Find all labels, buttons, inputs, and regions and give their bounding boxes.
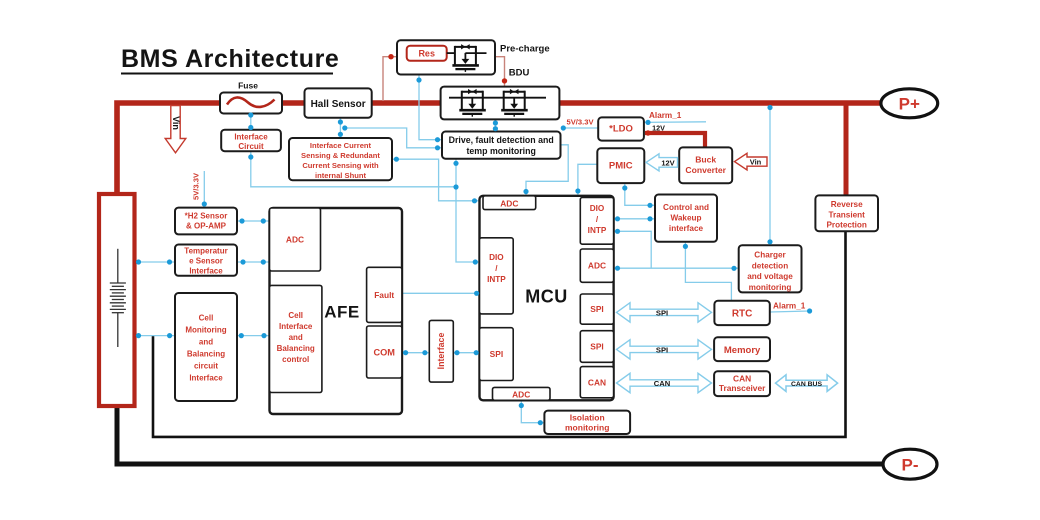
- svg-text:12V: 12V: [661, 159, 674, 168]
- svg-text:CAN: CAN: [654, 379, 670, 388]
- svg-text:Interface: Interface: [279, 322, 313, 331]
- svg-text:e Sensor: e Sensor: [189, 257, 223, 266]
- svg-text:SPI: SPI: [590, 342, 604, 352]
- svg-text:temp monitoring: temp monitoring: [466, 146, 535, 156]
- svg-text:Protection: Protection: [826, 221, 867, 230]
- svg-text:Memory: Memory: [724, 345, 761, 356]
- svg-text:Cell: Cell: [199, 314, 214, 323]
- svg-text:CAN BUS: CAN BUS: [791, 381, 822, 388]
- svg-text:Alarm_1: Alarm_1: [773, 301, 806, 310]
- svg-text:Buck: Buck: [695, 154, 716, 164]
- svg-text:INTP: INTP: [487, 275, 506, 284]
- svg-text:internal Shunt: internal Shunt: [315, 171, 367, 180]
- svg-text:AFE: AFE: [324, 303, 360, 322]
- svg-text:*H2 Sensor: *H2 Sensor: [185, 212, 228, 221]
- svg-text:P-: P-: [902, 456, 919, 475]
- svg-text:Pre-charge: Pre-charge: [500, 44, 550, 55]
- svg-text:CAN: CAN: [588, 377, 606, 387]
- svg-text:SPI: SPI: [656, 345, 668, 354]
- svg-text:Temperatur: Temperatur: [184, 247, 227, 256]
- svg-text:Sensing & Redundant: Sensing & Redundant: [301, 151, 380, 160]
- svg-text:Current Sensing with: Current Sensing with: [302, 161, 379, 170]
- svg-text:CAN: CAN: [733, 373, 751, 383]
- svg-text:5V/3.3V: 5V/3.3V: [192, 172, 201, 200]
- svg-text:Interface: Interface: [234, 133, 268, 142]
- svg-text:Fuse: Fuse: [238, 81, 258, 91]
- svg-text:MCU: MCU: [525, 287, 568, 307]
- svg-text:monitoring: monitoring: [749, 283, 792, 292]
- svg-text:monitoring: monitoring: [565, 423, 609, 433]
- svg-text:BMS Architecture: BMS Architecture: [121, 45, 339, 73]
- svg-text:Vin: Vin: [750, 158, 762, 167]
- svg-text:control: control: [282, 355, 309, 364]
- svg-text:DIO: DIO: [489, 253, 504, 262]
- svg-text:RTC: RTC: [732, 309, 753, 320]
- svg-text:Wakeup: Wakeup: [670, 214, 701, 223]
- svg-text:Hall Sensor: Hall Sensor: [311, 99, 366, 110]
- svg-text:Monitoring: Monitoring: [185, 326, 226, 335]
- svg-text:Reverse: Reverse: [831, 200, 863, 209]
- svg-text:Interface: Interface: [189, 374, 223, 383]
- svg-text:and: and: [289, 333, 303, 342]
- svg-text:ADC: ADC: [500, 199, 518, 209]
- svg-text:SPI: SPI: [490, 349, 504, 359]
- svg-text:Drive, fault detection and: Drive, fault detection and: [449, 135, 554, 145]
- svg-text:Balancing: Balancing: [187, 350, 225, 359]
- svg-text:Transient: Transient: [828, 210, 865, 219]
- svg-text:*LDO: *LDO: [609, 124, 633, 135]
- svg-text:and voltage: and voltage: [747, 272, 793, 281]
- svg-text:Alarm_1: Alarm_1: [649, 111, 682, 120]
- svg-text:Interface: Interface: [436, 333, 446, 370]
- svg-text:Charger: Charger: [754, 251, 786, 260]
- svg-text:5V/3.3V: 5V/3.3V: [566, 118, 594, 127]
- svg-text:Isolation: Isolation: [570, 412, 605, 422]
- svg-text:Interface Current: Interface Current: [310, 141, 372, 150]
- svg-text:12V: 12V: [652, 123, 665, 132]
- svg-text:Cell: Cell: [288, 311, 303, 320]
- svg-text:detection: detection: [752, 261, 788, 270]
- svg-text:ADC: ADC: [512, 389, 530, 399]
- svg-text:Interface: Interface: [189, 267, 223, 276]
- svg-text:interface: interface: [669, 224, 704, 233]
- svg-text:Circuit: Circuit: [238, 142, 264, 151]
- svg-text:Fault: Fault: [374, 290, 394, 300]
- svg-text:Converter: Converter: [685, 165, 726, 175]
- svg-text:SPI: SPI: [656, 308, 668, 317]
- svg-text:DIO: DIO: [590, 204, 605, 213]
- svg-text:Vin: Vin: [171, 116, 181, 130]
- svg-text:circuit: circuit: [194, 362, 218, 371]
- svg-text:ADC: ADC: [286, 235, 304, 245]
- svg-text:SPI: SPI: [590, 304, 604, 314]
- svg-text:and: and: [199, 338, 213, 347]
- svg-text:Transceiver: Transceiver: [719, 383, 766, 393]
- svg-text:Res: Res: [418, 49, 435, 59]
- svg-text:Control and: Control and: [663, 203, 709, 212]
- svg-text:ADC: ADC: [588, 261, 606, 271]
- svg-text:COM: COM: [373, 348, 395, 358]
- svg-text:Balancing: Balancing: [277, 344, 315, 353]
- svg-text:PMIC: PMIC: [609, 161, 633, 172]
- svg-text:INTP: INTP: [588, 226, 607, 235]
- svg-text:P+: P+: [899, 95, 920, 114]
- svg-text:BDU: BDU: [509, 68, 530, 79]
- svg-text:& OP-AMP: & OP-AMP: [186, 222, 227, 231]
